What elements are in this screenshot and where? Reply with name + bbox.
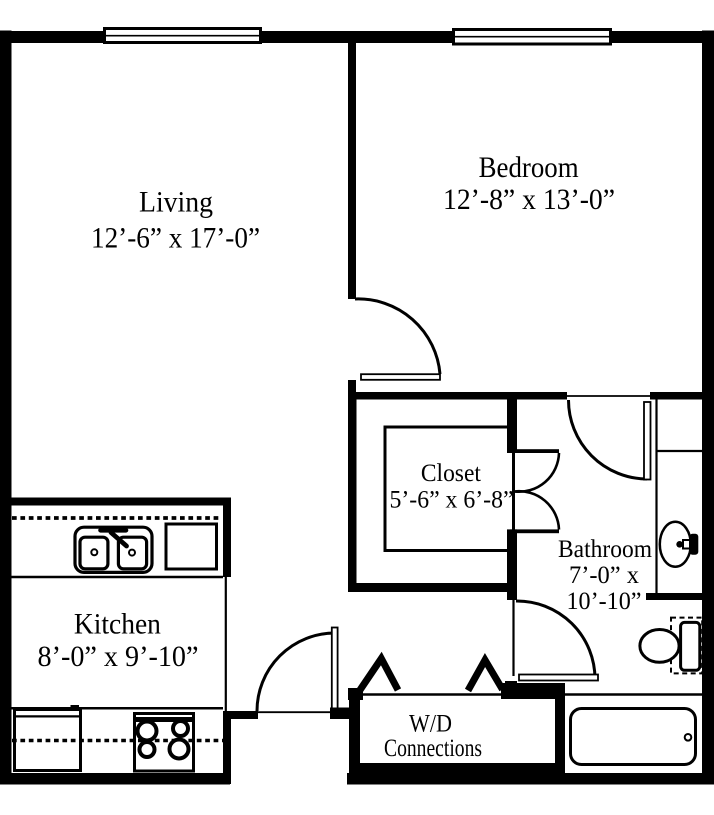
svg-text:Closet: Closet: [421, 460, 481, 487]
svg-text:Bathroom: Bathroom: [558, 536, 653, 563]
svg-text:Kitchen: Kitchen: [74, 608, 161, 641]
svg-text:8’-0” x 9’-10”: 8’-0” x 9’-10”: [38, 640, 199, 673]
svg-text:7’-0” x: 7’-0” x: [569, 562, 639, 589]
svg-text:12’-6” x 17’-0”: 12’-6” x 17’-0”: [91, 222, 260, 255]
svg-text:12’-8” x 13’-0”: 12’-8” x 13’-0”: [443, 183, 615, 216]
svg-text:Living: Living: [139, 186, 213, 219]
svg-text:5’-6” x 6’-8”: 5’-6” x 6’-8”: [390, 487, 514, 514]
svg-text:W/D: W/D: [409, 711, 452, 738]
svg-text:Connections: Connections: [384, 735, 482, 762]
svg-text:10’-10”: 10’-10”: [567, 588, 642, 615]
svg-text:Bedroom: Bedroom: [479, 151, 579, 184]
